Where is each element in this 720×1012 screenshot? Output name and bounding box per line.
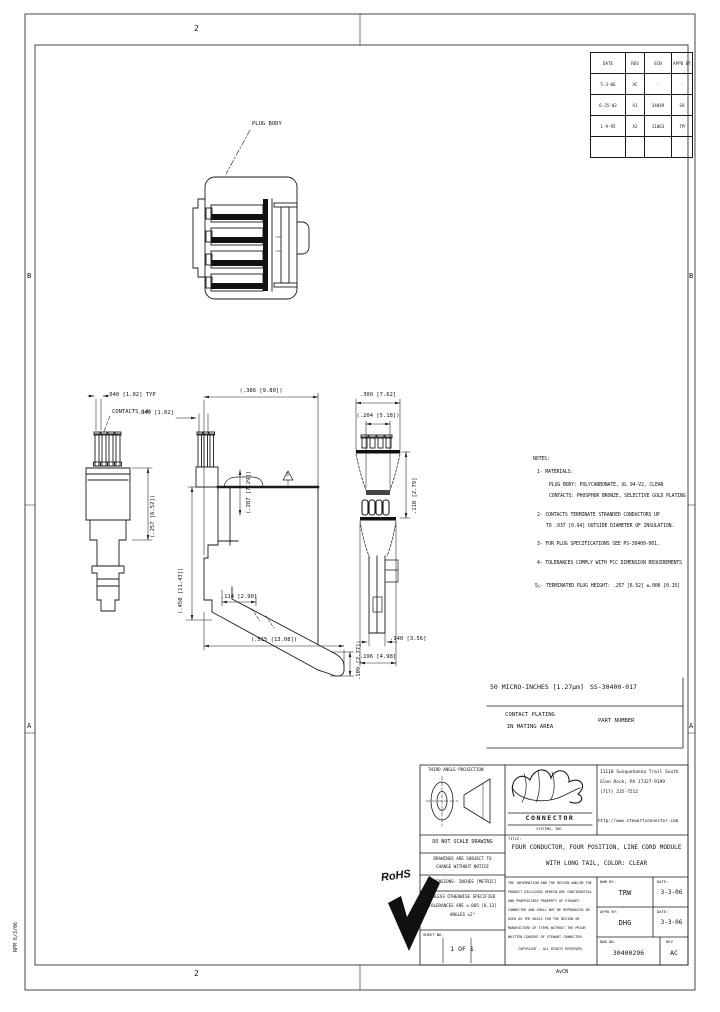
dim-right-base: .196 [4.98] (350, 654, 406, 660)
middle-side-view (176, 393, 354, 676)
date-value-1: 3-3-06 (655, 890, 688, 897)
legal-text: PRODUCT DISCLOSED HEREIN ARE CONFIDENTIA… (508, 890, 592, 895)
dwg-no-value: 30400296 (597, 950, 660, 957)
dim-mid-span: (.515 [13.08]) (214, 637, 334, 643)
dim-right-foot: .140 [3.56] (390, 636, 426, 642)
rev-cell: - (645, 74, 672, 95)
legal-text: USED AS THE BASIS FOR THE DESIGN OR (508, 917, 579, 922)
appd-by-label: APPD BY: (600, 910, 618, 914)
zone-marker-b-left: B (27, 272, 31, 280)
revision-row-empty (591, 137, 693, 158)
notes-heading: NOTES: (533, 457, 550, 463)
rev-cell: A2 (626, 116, 645, 137)
rev-cell: 1-9-95 (591, 116, 626, 137)
date-label-2: DATE: (657, 910, 668, 914)
rev-label: REV (666, 940, 673, 944)
legal-text: WRITTEN CONSENT OF STEWART CONNECTOR. (508, 935, 584, 940)
logo-subtext: SYSTEMS, INC. (508, 827, 592, 831)
dim-right-inner: (.204 [5.18]) (348, 413, 408, 419)
legal-text: THE INFORMATION AND THE DESIGN AND/OR TH… (508, 881, 592, 886)
dim-mid-pin: .040 [1.02] (128, 410, 174, 416)
dim-left-pitch: .040 [1.02] TYP (106, 392, 156, 398)
appd-by-value: DHG (597, 919, 653, 927)
note-line: PLUG BODY: POLYCARBONATE, UL 94-V2, CLEA… (549, 483, 663, 489)
revision-row: 5-3-06 AC - - (591, 74, 693, 95)
dim-mid-tab: .114 [2.90] (219, 594, 259, 600)
note-line: 4- TOLERANCES COMPLY WITH FCC DIMENSION … (537, 561, 682, 567)
rev-cell: 11063 (645, 116, 672, 137)
tolerance-note3: ANGLES ±2° (420, 913, 505, 918)
revision-row: 6-25-02 A1 34049 SA (591, 95, 693, 116)
revision-row: 1-9-95 A2 11063 TM (591, 116, 693, 137)
dwn-by-value: TRW (597, 889, 653, 897)
tolerance-note1: UNLESS OTHERWISE SPECIFIED (420, 895, 505, 900)
rev-cell: 6-25-02 (591, 95, 626, 116)
date-value-2: 3-3-06 (655, 920, 688, 927)
rev-cell: SA (672, 95, 693, 116)
rev-header-appd: APPD BY (672, 53, 693, 74)
flag-note-5: 5 (286, 473, 289, 479)
plug-body-callout: PLUG BODY (252, 121, 282, 127)
subject-to-change1: DRAWINGS ARE SUBJECT TO (420, 857, 505, 862)
title-label: TITLE: (508, 837, 522, 841)
plot-stamp-left: RPM 6/3/06 (14, 922, 20, 952)
rev-cell (672, 137, 693, 158)
tolerance-note2: TOLERANCES ARE ±.005 [0.13] (420, 904, 505, 909)
rev-header-ecn: ECN (645, 53, 672, 74)
dim-left-height: (.257 [6.52]) (150, 495, 156, 538)
dim-mid-left: (.450 [11.43]) (178, 568, 184, 614)
dim-mid-tail: .109 [2.77] (356, 644, 362, 680)
dim-right-width: .300 [7.62] (350, 392, 406, 398)
left-side-view (86, 396, 152, 611)
rev-cell (626, 137, 645, 158)
drawing-title-line2: WITH LONG TAIL, COLOR: CLEAR (505, 861, 688, 868)
address-line3: (717) 235-7512 (600, 790, 638, 795)
rev-value: AC (660, 950, 688, 957)
revision-table: DATE REV ECN APPD BY 5-3-06 AC - - 6-25-… (590, 52, 693, 158)
front-view (193, 130, 309, 299)
part-number-label: PART NUMBER (598, 718, 634, 724)
dim-mid-width: (.386 [9.80]) (204, 388, 318, 394)
plating-label2: IN MATING AREA (492, 724, 568, 730)
rev-header-rev: REV (626, 53, 645, 74)
zone-marker-a-left: A (27, 722, 31, 730)
subject-to-change2: CHANGE WITHOUT NOTICE (420, 865, 505, 870)
website-url: http://www.stewartconnector.com (598, 820, 678, 825)
rev-header-date: DATE (591, 53, 626, 74)
rev-cell: 5-3-06 (591, 74, 626, 95)
note-line: 1- MATERIALS: (537, 470, 573, 476)
legal-text: CONNECTOR AND SHALL NOT BE REPRODUCED OR (508, 908, 590, 913)
logo-wordmark: CONNECTOR (508, 815, 592, 822)
right-end-view (356, 399, 410, 666)
legal-text: AND PROPRIETARY PROPERTY OF STEWART (508, 899, 579, 904)
do-not-scale: DO NOT SCALE DRAWING (420, 840, 505, 846)
dim-mid-upper: (.287 [7.29]) (246, 471, 252, 514)
address-line2: Glen Rock, PA 17327-9199 (600, 780, 665, 785)
zone-marker-a-right: A (689, 722, 693, 730)
note-line: 3- FOR PLUG SPECIFICATIONS SEE PS-30400-… (537, 542, 660, 548)
rev-cell (591, 137, 626, 158)
rev-cell: - (672, 74, 693, 95)
plating-label: CONTACT PLATING (492, 712, 568, 718)
drawing-title-line1: FOUR CONDUCTOR, FOUR POSITION, LINE CORD… (505, 845, 688, 852)
address-line1: 11118 Susquehanna Trail South (600, 770, 679, 775)
date-label-1: DATE: (657, 880, 668, 884)
note-line: TO .037 [0.94] OUTSIDE DIAMETER OF INSUL… (546, 524, 674, 530)
zone-marker-bottom: 2 (194, 969, 199, 978)
plot-stamp-bottom: AvCN (556, 970, 568, 976)
dwn-by-label: DWN BY: (600, 880, 616, 884)
dim-right-height: .110 [2.79] (412, 478, 418, 514)
rev-cell (645, 137, 672, 158)
dimensions-note: DIMENSIONS: INCHES [METRIC] (420, 880, 505, 885)
note-line: CONTACTS: PHOSPHOR BRONZE, SELECTIVE GOL… (549, 494, 686, 500)
drawing-sheet: 2 2 B B A A RPM 6/3/06 AvCN DATE REV ECN… (0, 0, 720, 1012)
projection-symbol (426, 776, 490, 826)
part-number-value: SS-30400-017 (590, 684, 637, 691)
plating-value: 50 MICRO-INCHES [1.27μm] (490, 684, 584, 691)
rev-cell: AC (626, 74, 645, 95)
dwg-no-label: DWG NO. (600, 940, 616, 944)
legal-text: MANUFACTURE OF ITEMS WITHOUT THE PRIOR (508, 926, 586, 931)
sheet-value: 1 OF 1 (424, 946, 500, 953)
note-line: 5△- TERMINATED PLUG HEIGHT: .257 [6.52] … (535, 584, 680, 590)
rev-cell: 34049 (645, 95, 672, 116)
zone-marker-top: 2 (194, 24, 199, 33)
note-line: 2- CONTACTS TERMINATE STRANDED CONDUCTOR… (537, 513, 660, 519)
zone-marker-b-right: B (689, 272, 693, 280)
rev-cell: TM (672, 116, 693, 137)
legal-text: COPYRIGHT - ALL RIGHTS RESERVED (508, 947, 592, 952)
projection-label: THIRD ANGLE PROJECTION (428, 768, 483, 773)
sheet-label: SHEET NO. (423, 933, 444, 937)
rev-cell: A1 (626, 95, 645, 116)
